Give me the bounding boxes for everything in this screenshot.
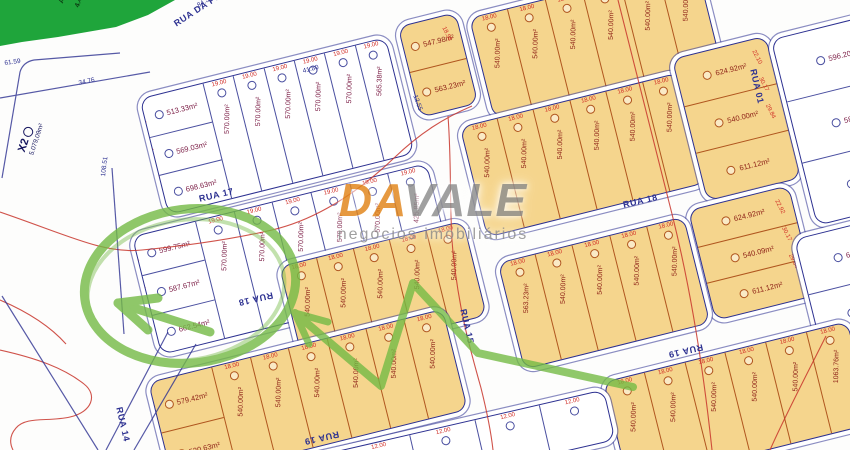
lot-number-marker — [476, 131, 487, 142]
lot-number-marker — [599, 0, 610, 4]
plat-map: X2 5.079,09m² DAVALE negócios imobiliári… — [0, 0, 850, 450]
lot-number-marker — [369, 252, 380, 263]
lot-area-label: 540.00m² — [634, 256, 642, 286]
lot-number-marker — [720, 215, 731, 226]
contour-line — [0, 350, 92, 450]
lot-area-label: 570.00m² — [255, 97, 263, 127]
lot-area-label: 611.12m² — [751, 280, 783, 296]
lot-area-label: 570.00m² — [315, 82, 323, 112]
lot-number-marker — [154, 109, 165, 120]
lot-area-label: 540.00m² — [666, 102, 674, 132]
lot-number-marker — [726, 165, 737, 176]
lot-area-label: 1063.76m² — [833, 350, 841, 384]
lot-number-marker — [267, 361, 278, 372]
lot-area-label: 540.00m² — [570, 20, 578, 50]
lot-area-label: 540.00m² — [451, 251, 459, 281]
lot-area-label: 611.12m² — [738, 156, 770, 172]
lot-area-label: 540.00m² — [726, 109, 759, 125]
lot-number-marker — [344, 341, 355, 352]
lot: 12.00 — [539, 391, 615, 450]
contour-line — [0, 300, 66, 344]
lot-area-label: 540.00m² — [630, 112, 638, 142]
lot-area-label: 540.00m² — [237, 387, 245, 417]
lot-number-marker — [216, 87, 227, 98]
watermark-brand-da: DA — [339, 174, 404, 226]
lot-number-marker — [146, 247, 157, 258]
lot: 12.00 — [410, 420, 486, 450]
lot-number-marker — [832, 252, 843, 263]
lot-number-marker — [213, 225, 224, 236]
lot-number-marker — [622, 385, 633, 396]
lot-number-marker — [846, 179, 850, 190]
lot-area-label: 540.00m² — [276, 377, 284, 407]
lot-number-marker — [486, 22, 497, 33]
lot-area-label: 540.00m² — [711, 382, 719, 412]
lot-number-marker — [626, 239, 637, 250]
watermark-brand-vale: VALE — [404, 174, 527, 226]
lot-number-marker — [156, 287, 167, 298]
landmark-marker-icon — [22, 125, 35, 138]
lot-area-label: 540.00m² — [414, 260, 422, 290]
lot-number-marker — [164, 399, 175, 410]
lot-number-marker — [702, 70, 713, 81]
lot-frontage-label: 12.00 — [371, 442, 387, 450]
lot-number-marker — [421, 86, 432, 97]
lot-number-marker — [277, 72, 288, 83]
lot-area-label: 540.00m² — [429, 339, 437, 369]
block-y0: 547.98m²563.23m²18.56 — [398, 12, 479, 118]
lot-number-marker — [552, 257, 563, 268]
lot-area-label: 540.00m² — [314, 368, 322, 398]
lot-number-marker — [515, 267, 526, 278]
lot-number-marker — [703, 365, 714, 376]
lot-number-marker — [173, 186, 184, 197]
lot-area-label: 540.09m² — [742, 243, 775, 259]
lot-number-marker — [815, 55, 826, 66]
boundary-line — [2, 296, 98, 450]
lot-number-marker — [744, 355, 755, 366]
lot-stack-column: 624.92m²540.09m²611.12m² — [689, 186, 815, 319]
lot-area-label: 540.00m² — [495, 38, 503, 68]
boundary-line — [0, 72, 150, 98]
lot-number-marker — [296, 270, 307, 281]
lot-area-label: 563.23m² — [433, 78, 466, 94]
lot-area-label: 540.00m² — [304, 287, 312, 317]
lot-area-label: 540.00m² — [752, 372, 760, 402]
lot-area-label: 540.00m² — [645, 1, 653, 31]
lot-strip-row: 18.00540.00m²18.00540.00m²18.00540.00m²1… — [604, 322, 850, 450]
lot-area-label: 570.00m² — [224, 104, 232, 134]
lot-area-label: 624.92m² — [715, 62, 748, 78]
lot-area-label: 624.92m² — [733, 207, 766, 223]
lot-number-marker — [251, 215, 262, 226]
lot-number-marker — [729, 252, 740, 263]
lot-number-marker — [662, 375, 673, 386]
lot-area-label: 540.00m² — [341, 278, 349, 308]
lot-area-label: 599.75m² — [158, 239, 191, 255]
lot-number-marker — [505, 421, 516, 432]
lot-number-marker — [333, 261, 344, 272]
boundary-line — [112, 168, 124, 334]
lot-area-label: 540.00m² — [557, 130, 565, 160]
watermark-subtitle: negócios imobiliários — [288, 226, 578, 244]
lot: 12.00 — [474, 405, 550, 450]
boundary-measurement: 61.59 — [4, 58, 21, 67]
lot-number-marker — [825, 335, 836, 346]
lot-area-label: 540.00m² — [597, 265, 605, 295]
lot-area-label: 662.54m² — [178, 317, 211, 333]
watermark: DAVALE negócios imobiliários — [288, 176, 578, 244]
lot-area-label: 579.42m² — [176, 390, 209, 406]
lot-number-marker — [569, 406, 580, 417]
lot-area-label: 587.67m² — [168, 278, 201, 294]
lot-number-marker — [383, 332, 394, 343]
boundary-measurement: 34.76 — [78, 77, 95, 87]
watermark-brand: DAVALE — [288, 176, 578, 224]
lot-number-marker — [406, 243, 417, 254]
lot-area-label: 540.00m² — [630, 402, 638, 432]
lot-number-marker — [166, 326, 177, 337]
lot-number-marker — [421, 322, 432, 333]
lot-area-label: 630.08m² — [845, 244, 850, 260]
lot-area-label: 540.00m² — [671, 247, 679, 277]
lot-number-marker — [663, 230, 674, 241]
lot-area-label: 513.33m² — [166, 101, 199, 117]
lot-number-marker — [549, 113, 560, 124]
lot-area-label: 540.00m² — [560, 274, 568, 304]
lot-number-marker — [338, 57, 349, 68]
lot-area-label: 540.00m² — [377, 269, 385, 299]
lot-area-label: 540.00m² — [671, 392, 679, 422]
lot-area-label: 540.00m² — [792, 362, 800, 392]
lot-number-marker — [714, 117, 725, 128]
lot-area-label: 540.00m² — [532, 29, 540, 59]
street-label: RUA 14 — [114, 406, 132, 443]
lot-area-label: 565.38m² — [376, 66, 384, 96]
lot-number-marker — [368, 50, 379, 61]
lot-area-label: 540.00m² — [352, 358, 360, 388]
lot-area-label: 540.00m² — [683, 0, 691, 21]
lot-area-label: 585.18m² — [843, 108, 850, 124]
lot-number-marker — [739, 288, 750, 299]
lot-number-marker — [440, 435, 451, 446]
lot-area-label: 570.00m² — [221, 241, 229, 271]
lot-area-label: 540.00m² — [608, 10, 616, 40]
lot-area-label: 570.00m² — [259, 232, 267, 262]
lot-number-marker — [784, 345, 795, 356]
landmark-x2: X2 5.079,09m² — [16, 119, 45, 156]
lot-area-label: 540.00m² — [594, 121, 602, 151]
lot-number-marker — [846, 307, 850, 318]
lot-number-marker — [513, 122, 524, 133]
lot-area-label: 570.00m² — [346, 74, 354, 104]
lot-number-marker — [229, 370, 240, 381]
lot-number-marker — [524, 12, 535, 23]
lot-number-marker — [246, 80, 257, 91]
lot-number-marker — [164, 147, 175, 158]
lot-area-label: 540.00m² — [521, 139, 529, 169]
lot-area-label: 569.03m² — [175, 139, 208, 155]
lot-number-marker — [585, 104, 596, 115]
lot-number-marker — [589, 248, 600, 259]
lot-number-marker — [830, 117, 841, 128]
lot-area-label: 540.00m² — [391, 349, 399, 379]
lot-number-marker — [410, 41, 421, 52]
lot-stack-column: 547.98m²563.23m² — [399, 13, 478, 116]
lot-area-label: 520.63m² — [188, 440, 221, 450]
lot-number-marker — [306, 351, 317, 362]
lot-number-marker — [622, 95, 633, 106]
lot-number-marker — [562, 3, 573, 14]
lot-area-label: 596.20m² — [827, 46, 850, 62]
lot-area-label: 563.23m² — [523, 284, 531, 314]
lot-area-label: 570.00m² — [285, 89, 293, 119]
lot-number-marker — [658, 86, 669, 97]
boundary-measurement: 108.51 — [100, 156, 109, 177]
